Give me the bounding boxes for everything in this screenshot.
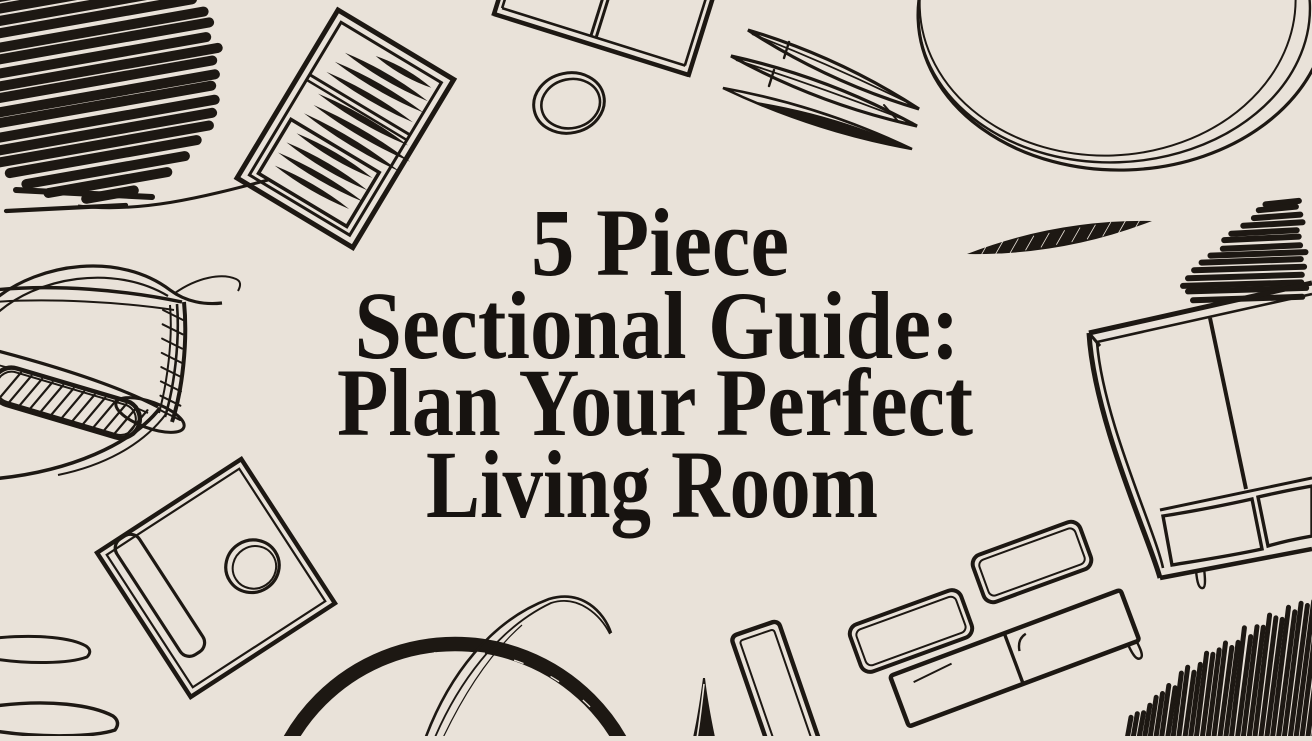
- svg-text:Living Room: Living Room: [426, 431, 878, 538]
